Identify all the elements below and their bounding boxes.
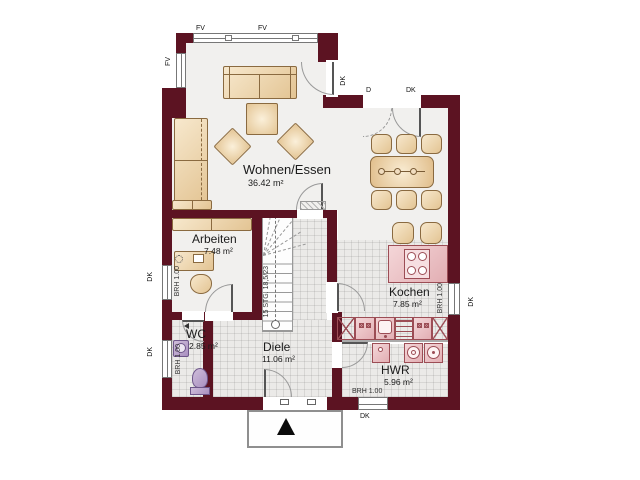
exterior-wall-right [448,95,460,410]
kitchen-drainboard [395,317,413,340]
room-area-wc: 2.85 m² [189,342,218,351]
desk-laptop [193,254,204,263]
utility-cabinet [372,343,390,363]
window-label-dk: DK [468,297,475,307]
dining-table-decor [378,168,385,175]
window-label-dk: DK [147,347,154,357]
dining-chair [396,190,417,210]
lowboard-divider [192,201,193,209]
cooktop-burner [418,252,427,261]
dining-chair [371,190,392,210]
stair-walking-line [275,216,276,322]
kitchen-tall-cabinet [337,317,355,340]
toilet-tank [190,387,210,395]
utility-cabinet-knob [378,347,383,352]
room-label-kitchen: Kochen [389,286,430,298]
wall-living-hall-east [323,210,337,218]
washing-machine-door [411,350,416,355]
entrance-arrow-icon [277,418,295,435]
office-sideboard [172,218,252,231]
window-kitchen-right [448,283,460,315]
room-area-office: 7.48 m² [204,247,233,256]
room-area-kitchen: 7.85 m² [393,300,422,309]
tall-cabinet-door-dash [201,119,202,205]
door-hall-utility-opening [332,342,342,368]
window-label-brh: BRH 1.00 [175,344,182,374]
tall-cabinet-divider [175,160,207,161]
window-label-fv: FV [165,57,172,66]
kitchen-base-cabinet-knob [359,323,364,328]
exterior-wall-living-right [328,33,338,62]
sofa-armrest [229,67,230,98]
kitchen-tall-cabinet [432,317,448,340]
coffee-table [246,103,278,135]
room-label-utility: HWR [381,364,410,376]
sofa-cushion-divider [259,75,260,98]
wall-corridor-kitchen [327,218,337,283]
window-mullion [292,35,299,41]
wall-office-hall-east [233,312,252,320]
dining-chair [421,134,442,154]
office-sideboard-divider [211,219,212,230]
window-label-brh: BRH 1.00 [437,283,444,313]
window-label-brh: BRH 1.00 [174,266,181,296]
wall-hall-utility-lower [332,368,342,397]
sofa-armrest [290,67,291,98]
wall-office-stair [252,210,262,320]
dining-chair [421,190,442,210]
kitchen-base-cabinet-knob [366,323,371,328]
kitchen-faucet [384,335,387,338]
dining-chair [371,134,392,154]
room-label-living: Wohnen/Essen [243,163,331,176]
bar-stool [420,222,442,244]
radiator [300,201,326,210]
kitchen-base-cabinet-knob [424,323,429,328]
dining-table-centerline [379,171,425,172]
window-living-left [176,53,186,88]
window-label-dk: DK [360,413,370,420]
window-label-fv: FV [196,25,205,32]
room-area-hall: 11.06 m² [262,355,295,364]
front-door-opening [263,397,327,410]
dryer-knob [432,351,435,354]
bar-stool [392,222,414,244]
door-label-dk: DK [340,76,347,86]
plant-icon [175,255,183,263]
door-dining-terrace-opening [363,95,421,108]
window-mullion [225,35,232,41]
cooktop-burner [407,252,416,261]
sofa-backrest-line [224,74,296,75]
door-living-hall-opening [297,209,323,219]
door-office-opening [205,311,233,321]
window-label-brh: BRH 1.00 [352,388,382,395]
room-area-utility: 5.96 m² [384,378,413,387]
door-label-d: D [366,87,371,94]
cooktop-burner [418,266,427,275]
kitchen-base-cabinet [413,317,432,340]
room-label-office: Arbeiten [192,233,237,245]
door-label-dk: DK [406,87,416,94]
window-label-dk: DK [147,272,154,282]
entrance-porch [247,410,343,448]
desk-chair [190,274,212,294]
dining-table-decor [394,168,401,175]
tall-cabinet [174,118,208,206]
window-living-top [193,33,318,43]
stair-walking-line-start [271,320,280,329]
front-door-jamb [307,399,316,405]
wall-living-hall [172,210,297,218]
room-area-living: 36.42 m² [248,179,284,188]
toilet-bowl [192,368,208,388]
stair-note: 15 STG. 18,5/23 [263,266,270,317]
dining-chair [396,134,417,154]
kitchen-base-cabinet [355,317,375,340]
room-label-wc: WC [186,328,206,340]
window-utility-bottom [358,397,388,410]
floor-plan: 15 STG. 18,5/23 [0,0,640,480]
cooktop-burner [407,266,416,275]
kitchen-base-cabinet-knob [417,323,422,328]
window-office-left [162,265,172,300]
front-door-jamb [280,399,289,405]
kitchen-sink-basin [378,320,392,334]
room-label-hall: Diele [263,341,290,353]
window-label-fv: FV [258,25,267,32]
window-wc-left [162,340,172,378]
exterior-wall-left-step [162,88,186,118]
dining-table-decor [410,168,417,175]
sofa [223,66,297,99]
wall-office-wc-west [172,312,182,320]
